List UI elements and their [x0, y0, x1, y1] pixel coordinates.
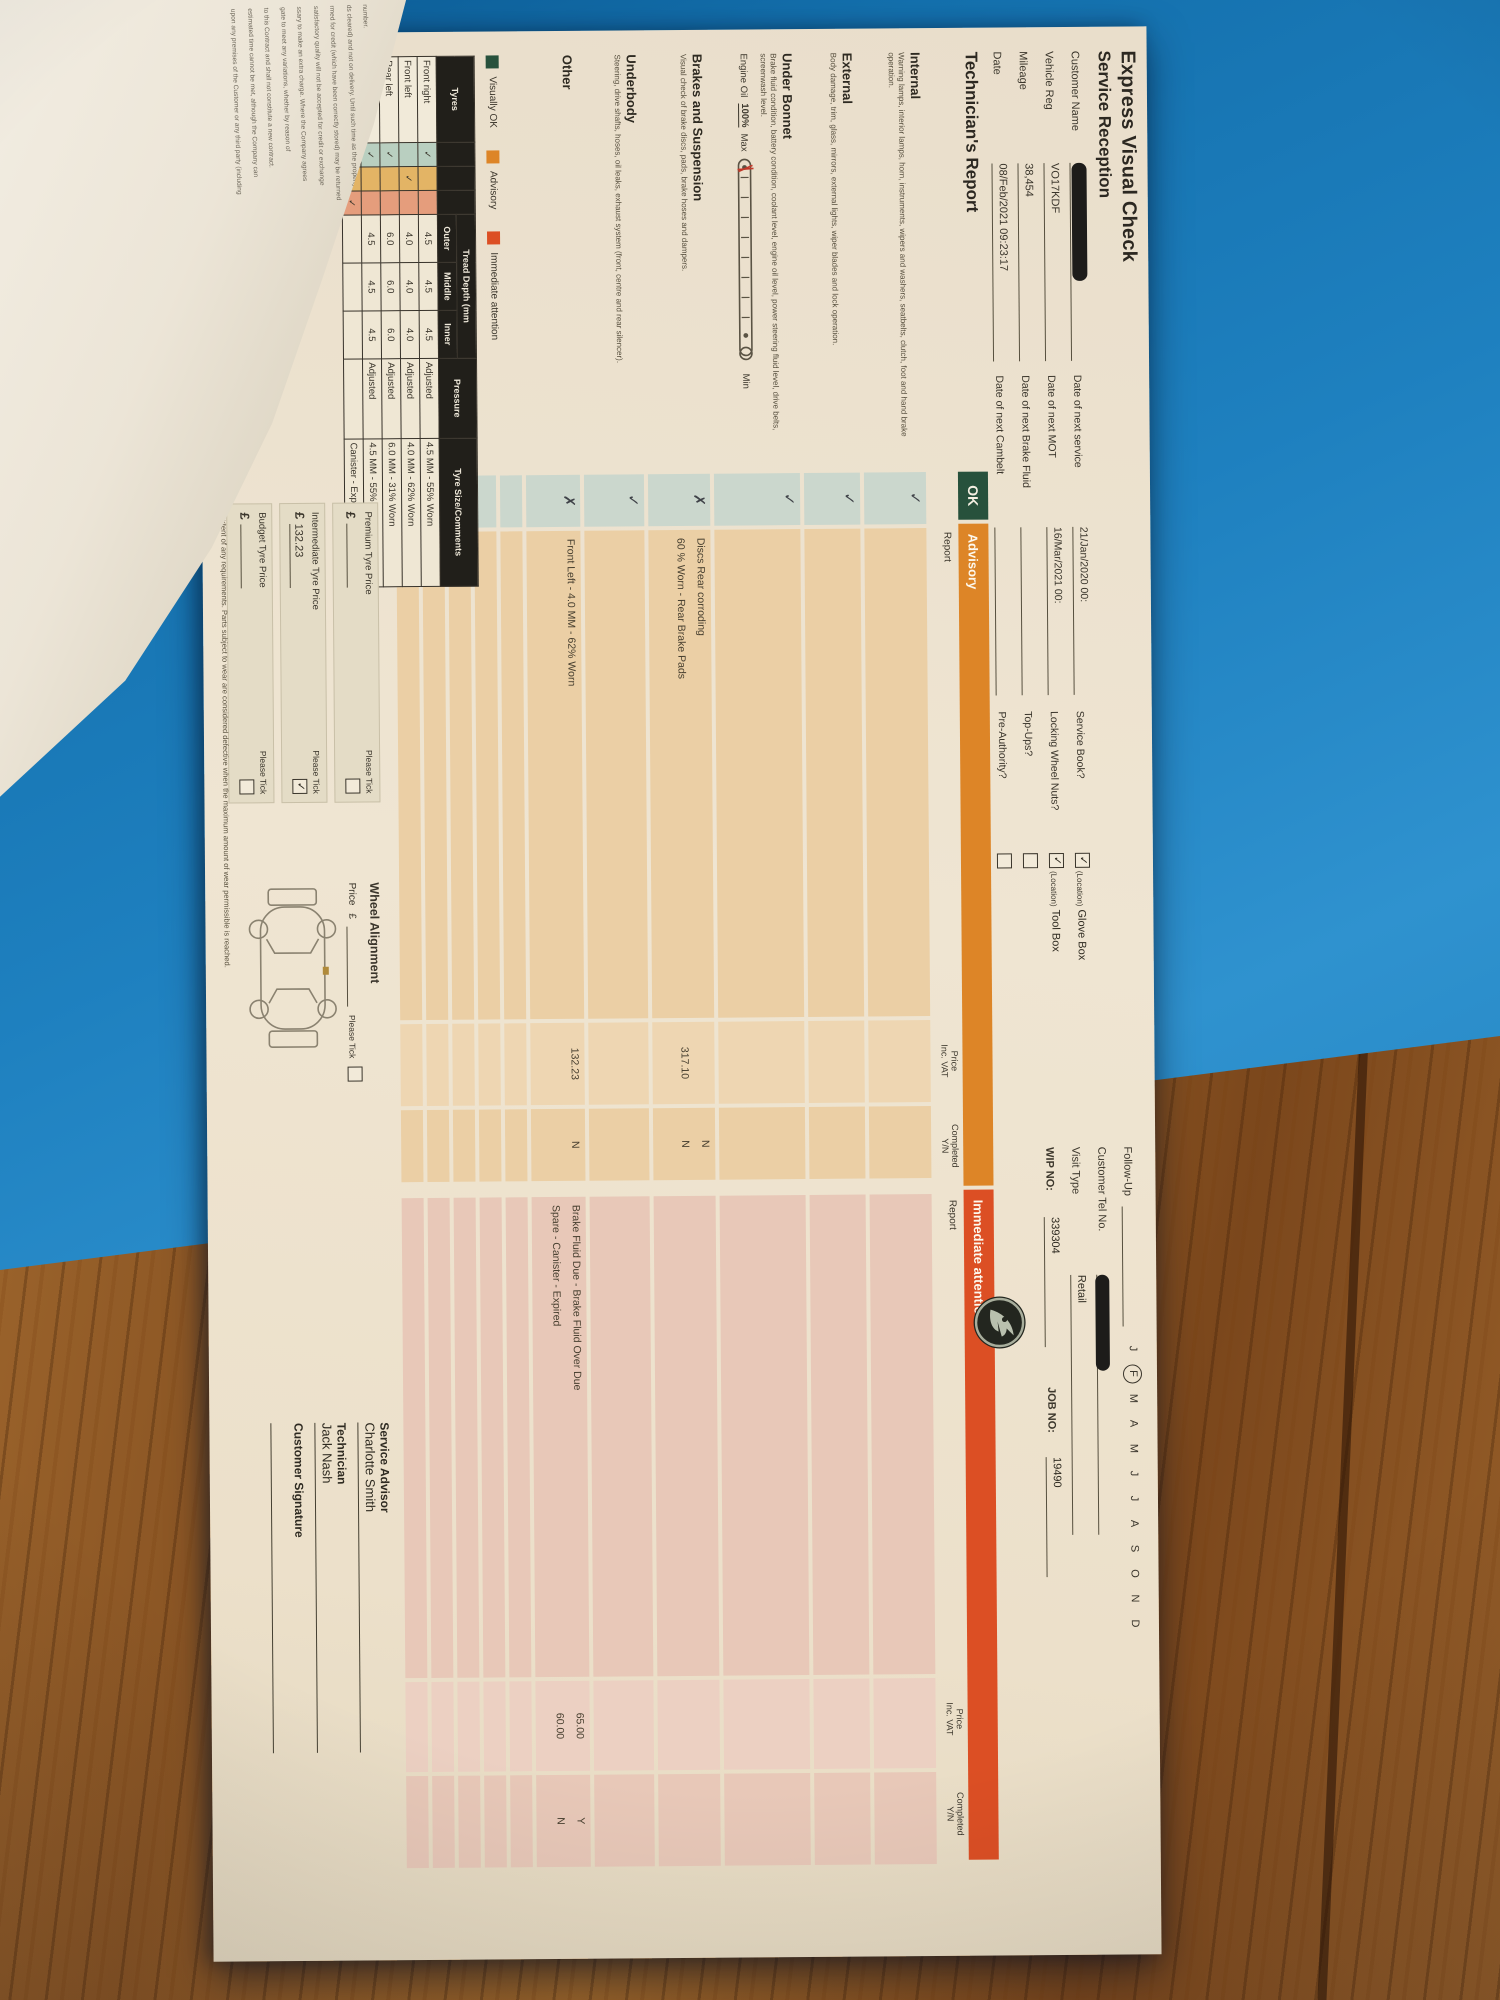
customer-tel-label: Customer Tel No.	[1095, 1147, 1108, 1275]
redacted-phone	[1095, 1275, 1110, 1371]
cells-under-bonnet: ✓	[714, 473, 811, 1866]
service-book-checkbox: ✓	[1075, 853, 1090, 868]
tyres-header-row: Tyres Tread Depth (mm Pressure Tyre Size…	[455, 56, 478, 586]
section-internal: Internal Warning lamps, interior lamps, …	[886, 52, 925, 458]
wheel-alignment-box: Wheel Alignment Price £ Please Tick	[246, 882, 384, 1213]
job-no-label: JOB NO:	[1045, 1387, 1058, 1457]
top-ups-checkbox	[1023, 853, 1038, 868]
follow-up-line	[1122, 1206, 1138, 1326]
immediate-report-label: Report	[947, 1200, 958, 1230]
months-row: JFMAMJJASOND	[1123, 1336, 1145, 1636]
section-under-bonnet: Under Bonnet Brake fluid condition, batt…	[733, 53, 797, 459]
cells-external: ✓	[804, 473, 871, 1865]
wheel-nuts-checkbox: ✓	[1049, 853, 1064, 868]
alignment-tick-checkbox	[348, 1066, 363, 1081]
signoff-block: Service Advisor Charlotte Smith Technici…	[270, 1422, 394, 1753]
immediate-header-band: Immediate attention	[964, 1190, 999, 1860]
advisory-price-label: PriceInc. VAT	[938, 1020, 958, 1102]
section-underbody: Underbody Steering, drive shafts, hoses,…	[612, 54, 642, 460]
immediate-completed-label: CompletedY/N	[944, 1768, 965, 1860]
legend-advisory-swatch	[486, 150, 499, 163]
cells-brakes: ✗ Discs Rear corroding 60 % Worn - Rear …	[648, 474, 721, 1866]
legend-ok-swatch	[486, 55, 499, 68]
wood-groove	[1316, 1030, 1369, 2000]
date-value: 08/Feb/2021 09:23:17	[991, 163, 1010, 361]
section-external: External Body damage, trim, glass, mirro…	[828, 53, 858, 459]
form-title-block: Express Visual Check Service Reception	[1094, 50, 1141, 262]
visit-type-label: Visit Type	[1069, 1147, 1082, 1275]
intermediate-tick-checkbox: ✓	[292, 779, 307, 794]
customer-name-value	[1069, 163, 1088, 361]
customer-signature-line	[270, 1423, 278, 1753]
field-row-mileage: Mileage 38,454 Date of next Brake Fluid …	[1017, 51, 1047, 868]
advisory-report-label: Report	[941, 532, 952, 562]
dipstick-icon	[734, 158, 756, 368]
field-row-date: Date 08/Feb/2021 09:23:17 Date of next C…	[991, 51, 1021, 868]
immediate-price-label: PriceInc. VAT	[944, 1674, 964, 1764]
intermediate-tyre-price-box: Intermediate Tyre Price £ 132.23 Please …	[279, 503, 327, 803]
cells-underbody: ✓	[584, 474, 655, 1866]
cells-other: ✗ Front Left - 4.0 MM - 62% Worn 132.23 …	[526, 475, 591, 1867]
advisory-header-band: Advisory	[958, 524, 993, 1186]
pre-authority-checkbox	[997, 853, 1012, 868]
engine-oil-gauge: Engine Oil 100% Max	[733, 53, 756, 459]
service-sheet-paper: Express Visual Check Service Reception F…	[198, 26, 1161, 1961]
mileage-value: 38,454	[1017, 163, 1036, 361]
section-other: Other	[560, 55, 575, 90]
ok-header: OK	[958, 472, 988, 520]
legend-immediate-swatch	[487, 231, 500, 244]
budget-tyre-price-box: Budget Tyre Price £ Please Tick	[226, 503, 274, 803]
section-brakes: Brakes and Suspension Visual check of br…	[678, 54, 708, 460]
technicians-report-title: Technician's Report	[961, 52, 982, 213]
tyre-price-boxes: Premium Tyre Price £ Please Tick Interme…	[219, 502, 380, 803]
alignment-price-line	[346, 927, 361, 1007]
service-sheet-content: Express Visual Check Service Reception F…	[198, 26, 1161, 1961]
advisory-completed-label: CompletedY/N	[939, 1108, 959, 1184]
customer-tel-value	[1096, 1275, 1115, 1535]
status-legend: Visually OK Advisory Immediate attention	[486, 55, 501, 340]
visit-type-value: Retail	[1070, 1275, 1089, 1535]
wip-no-label: WIP NO:	[1043, 1147, 1056, 1217]
follow-up-label: Follow-Up	[1121, 1146, 1133, 1196]
job-no-value: 19490	[1046, 1457, 1064, 1577]
vehicle-reg-value: VO17KDF	[1043, 163, 1062, 361]
redacted-name	[1071, 163, 1087, 281]
premium-tick-checkbox	[345, 779, 360, 794]
photo-of-service-check-sheet: Express Visual Check Service Reception F…	[0, 0, 1500, 2000]
budget-tick-checkbox	[239, 779, 254, 794]
form-subtitle: Service Reception	[1094, 51, 1116, 263]
car-top-view-icon	[246, 883, 339, 1054]
premium-tyre-price-box: Premium Tyre Price £ Please Tick	[332, 502, 380, 802]
cells-internal: ✓	[864, 472, 937, 1864]
month-circled: F	[1123, 1361, 1142, 1386]
form-title: Express Visual Check	[1116, 50, 1141, 262]
wip-no-value: 339304	[1044, 1217, 1062, 1347]
skoda-logo	[972, 1295, 1026, 1349]
header-right-column: Follow-Up JFMAMJJASOND Customer Tel No. …	[1043, 1146, 1151, 1937]
